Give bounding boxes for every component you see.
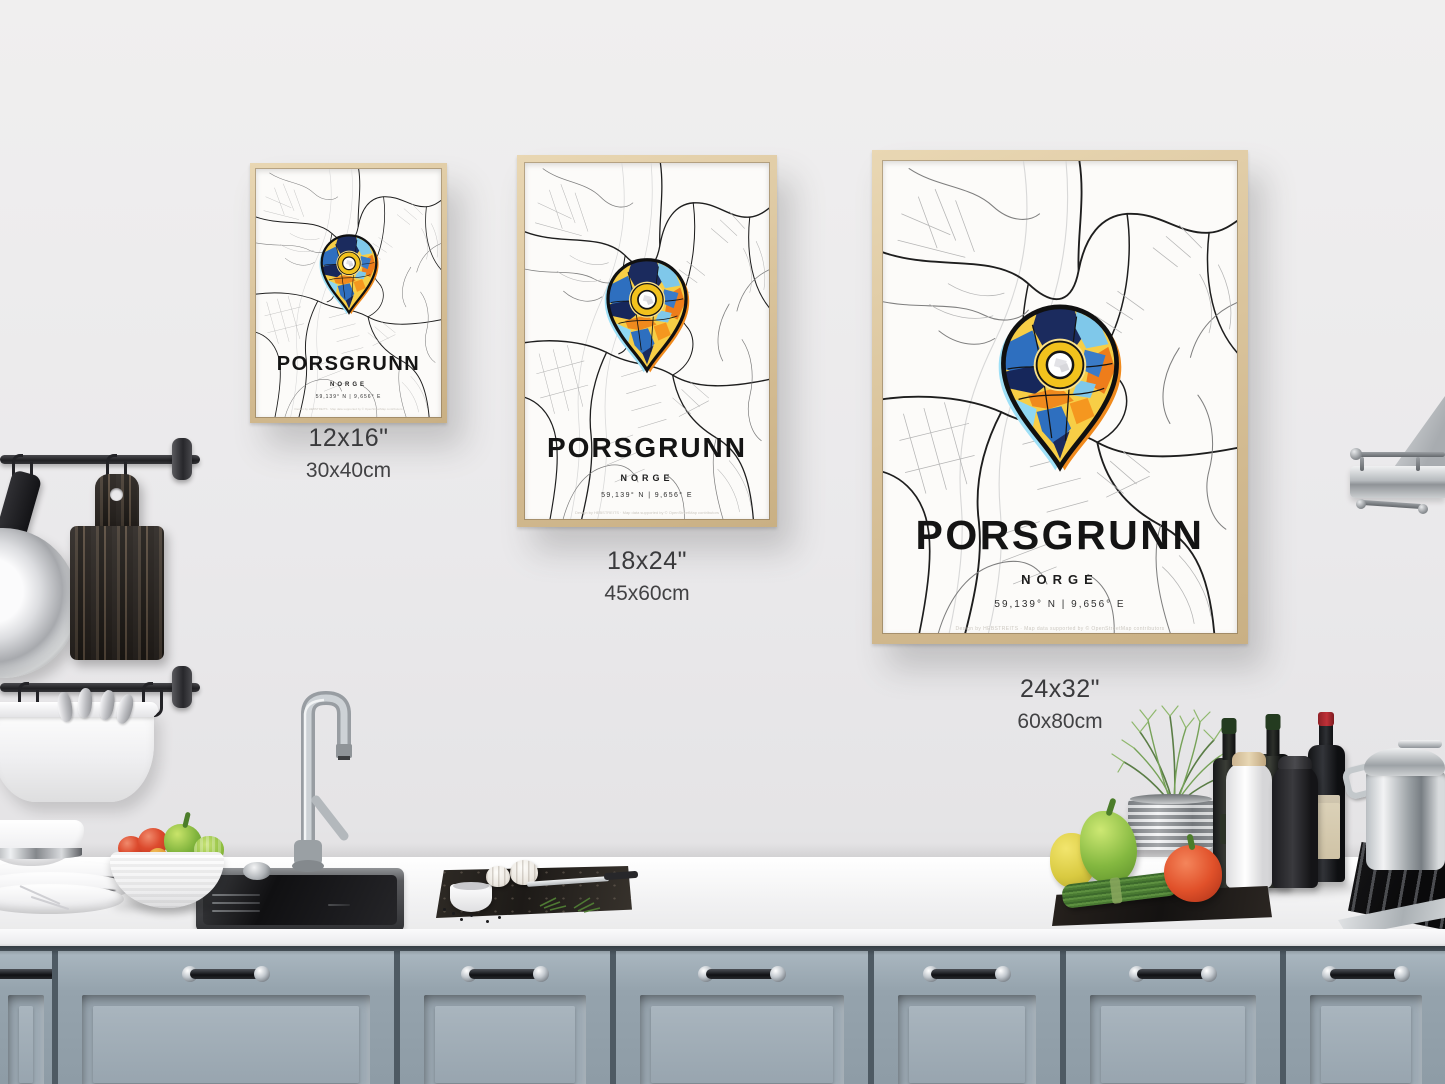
salt-grinder-white (1226, 762, 1272, 888)
hood-rail (1356, 452, 1445, 457)
poster-small: PORSGRUNN NORGE 59,139° N | 9,656° E Des… (250, 163, 447, 423)
poster-coordinates: 59,139° N | 9,656° E (256, 394, 441, 400)
cabinet-door (58, 951, 394, 1084)
cabinet-door (1286, 951, 1445, 1084)
size-label-small: 12x16" 30x40cm (250, 424, 447, 483)
wine-bottle-capsule (1318, 712, 1334, 726)
stainless-pot (1366, 772, 1445, 870)
faucet (278, 688, 388, 873)
poster-text-block: PORSGRUNN NORGE 59,139° N | 9,656° E Des… (525, 434, 769, 515)
small-mortar-bowl (450, 884, 492, 912)
bottle-cap (1222, 718, 1237, 734)
rail-finial (172, 438, 192, 480)
kitchen-sink (196, 868, 404, 932)
cabinet-door (0, 951, 52, 1084)
cabinet-handle (1129, 966, 1217, 982)
map-pin-icon (599, 255, 694, 375)
cabinet-handle (698, 966, 786, 982)
poster-attribution: Design by HEBSTREITS · Map data supporte… (256, 407, 441, 411)
cabinet-handle (923, 966, 1011, 982)
hanging-cutting-board (70, 474, 164, 660)
peppercorn (470, 914, 473, 917)
soap-dispenser (243, 862, 271, 880)
poster-medium: PORSGRUNN NORGE 59,139° N | 9,656° E Des… (517, 155, 777, 527)
peppercorn (486, 920, 489, 923)
bowl-metallic-band (0, 848, 82, 859)
peppercorn (443, 908, 446, 911)
poster-text-block: PORSGRUNN NORGE 59,139° N | 9,656° E Des… (883, 515, 1237, 632)
range-hood-band (1350, 466, 1445, 498)
bottle-cap (1266, 714, 1281, 730)
plate-in-bin (56, 691, 74, 723)
peppercorn (498, 916, 501, 919)
poster-coordinates: 59,139° N | 9,656° E (883, 599, 1237, 610)
poster-coordinates: 59,139° N | 9,656° E (525, 492, 769, 499)
poster-large: PORSGRUNN NORGE 59,139° N | 9,656° E Des… (872, 150, 1248, 644)
size-centimeters: 30x40cm (250, 459, 447, 483)
cabinet-door (874, 951, 1060, 1084)
hanging-utensil-bin (0, 706, 154, 802)
poster-text-block: PORSGRUNN NORGE 59,139° N | 9,656° E Des… (256, 354, 441, 411)
poster-medium-print: PORSGRUNN NORGE 59,139° N | 9,656° E Des… (525, 163, 769, 519)
map-pin-icon (991, 300, 1129, 474)
peppercorn (452, 912, 455, 915)
cabinet-handle (0, 966, 52, 982)
hood-rail-small (1362, 500, 1422, 509)
cutting-board-hole (110, 488, 123, 501)
cabinet-door (400, 951, 610, 1084)
peppercorn (460, 918, 463, 921)
poster-small-print: PORSGRUNN NORGE 59,139° N | 9,656° E Des… (256, 169, 441, 417)
pepper-grinder-black (1272, 765, 1318, 888)
size-label-medium: 18x24" 45x60cm (517, 547, 777, 606)
poster-country: NORGE (525, 473, 769, 483)
size-inches: 12x16" (250, 424, 447, 453)
hanging-pan (0, 528, 78, 678)
poster-country: NORGE (883, 572, 1237, 587)
herb-sprigs (536, 888, 606, 914)
map-pin-icon (315, 232, 382, 316)
pot-lid-handle (1398, 740, 1442, 748)
counter-front-edge (0, 929, 1445, 946)
poster-attribution: Design by HEBSTREITS · Map data supporte… (525, 510, 769, 515)
poster-title: PORSGRUNN (525, 434, 769, 462)
cabinet-handle (1322, 966, 1410, 982)
kitchen-mockup-scene: PORSGRUNN NORGE 59,139° N | 9,656° E Des… (0, 0, 1445, 1084)
poster-country: NORGE (256, 382, 441, 388)
poster-title: PORSGRUNN (883, 515, 1237, 556)
herb-pot-tin (1128, 798, 1214, 850)
pot-lid (1364, 748, 1445, 776)
cabinet-handle (182, 966, 270, 982)
rail-finial (172, 666, 192, 708)
size-centimeters: 45x60cm (517, 582, 777, 606)
cabinet-door (1066, 951, 1280, 1084)
cabinet-handle (461, 966, 549, 982)
poster-attribution: Design by HEBSTREITS · Map data supporte… (883, 626, 1237, 632)
poster-large-print: PORSGRUNN NORGE 59,139° N | 9,656° E Des… (883, 161, 1237, 633)
red-bell-pepper (1164, 845, 1222, 902)
size-inches: 18x24" (517, 547, 777, 576)
garlic-bulb (486, 866, 510, 887)
cabinet-row (0, 946, 1445, 1084)
cabinet-door (616, 951, 868, 1084)
poster-title: PORSGRUNN (256, 354, 441, 374)
